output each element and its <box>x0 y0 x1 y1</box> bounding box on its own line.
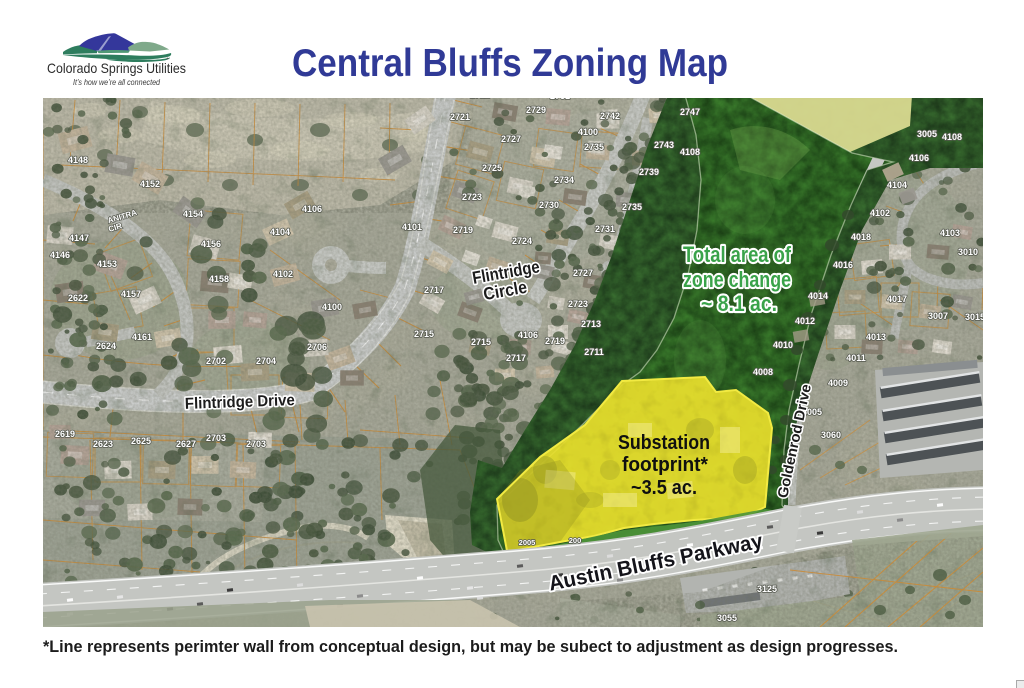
svg-text:4157: 4157 <box>121 289 141 299</box>
svg-text:2723: 2723 <box>568 299 588 309</box>
svg-text:2729: 2729 <box>526 105 546 115</box>
svg-text:4014: 4014 <box>808 291 828 301</box>
svg-text:3060: 3060 <box>821 430 841 440</box>
svg-text:2625: 2625 <box>131 436 151 446</box>
svg-text:4009: 4009 <box>828 378 848 388</box>
svg-text:4103: 4103 <box>940 228 960 238</box>
svg-text:4102: 4102 <box>870 208 890 218</box>
svg-text:3015: 3015 <box>965 312 985 322</box>
svg-text:It’s how we’re all connected: It’s how we’re all connected <box>73 78 160 87</box>
svg-text:4101: 4101 <box>402 222 422 232</box>
svg-text:4104: 4104 <box>887 180 907 190</box>
svg-text:3007: 3007 <box>928 311 948 321</box>
svg-text:4106: 4106 <box>302 204 322 214</box>
svg-text:Substation: Substation <box>618 432 710 454</box>
svg-text:2703: 2703 <box>246 439 266 449</box>
svg-text:2731: 2731 <box>595 224 615 234</box>
svg-text:4011: 4011 <box>846 353 866 363</box>
svg-text:2717: 2717 <box>506 353 526 363</box>
svg-text:2730: 2730 <box>539 200 559 210</box>
svg-text:4148: 4148 <box>68 155 88 165</box>
svg-text:2747: 2747 <box>680 107 700 117</box>
svg-text:zone change: zone change <box>683 267 791 292</box>
svg-text:2706: 2706 <box>307 342 327 352</box>
svg-text:2731: 2731 <box>550 91 570 101</box>
svg-text:~ 8.1 ac.: ~ 8.1 ac. <box>701 291 777 316</box>
svg-text:2722: 2722 <box>470 90 490 100</box>
svg-text:200: 200 <box>569 536 582 545</box>
svg-text:4106: 4106 <box>909 153 929 163</box>
svg-text:2723: 2723 <box>462 192 482 202</box>
svg-text:2715: 2715 <box>471 337 491 347</box>
svg-text:2703: 2703 <box>206 433 226 443</box>
svg-text:*Line represents perimter wall: *Line represents perimter wall from conc… <box>43 638 898 656</box>
svg-text:Colorado Springs Utilities: Colorado Springs Utilities <box>47 60 186 76</box>
svg-text:4146: 4146 <box>50 250 70 260</box>
svg-text:2735: 2735 <box>622 202 642 212</box>
svg-text:4012: 4012 <box>795 316 815 326</box>
svg-text:2739: 2739 <box>639 167 659 177</box>
svg-text:4106: 4106 <box>518 330 538 340</box>
svg-text:4018: 4018 <box>851 232 871 242</box>
svg-text:2717: 2717 <box>424 285 444 295</box>
svg-text:2624: 2624 <box>96 341 116 351</box>
svg-text:4017: 4017 <box>887 294 907 304</box>
svg-text:3125: 3125 <box>757 584 777 594</box>
svg-text:2719: 2719 <box>453 225 473 235</box>
svg-text:4161: 4161 <box>132 332 152 342</box>
svg-text:4100: 4100 <box>322 302 342 312</box>
svg-text:2623: 2623 <box>93 439 113 449</box>
svg-text:4102: 4102 <box>273 269 293 279</box>
svg-text:2715: 2715 <box>414 329 434 339</box>
svg-text:4016: 4016 <box>833 260 853 270</box>
svg-text:4013: 4013 <box>866 332 886 342</box>
svg-text:2704: 2704 <box>256 356 276 366</box>
svg-text:4108: 4108 <box>680 147 700 157</box>
svg-text:2619: 2619 <box>55 429 75 439</box>
svg-text:2702: 2702 <box>206 356 226 366</box>
svg-text:4158: 4158 <box>209 274 229 284</box>
svg-text:4154: 4154 <box>183 209 203 219</box>
svg-text:2719: 2719 <box>545 336 565 346</box>
svg-text:2005: 2005 <box>519 538 536 547</box>
svg-text:3055: 3055 <box>717 613 737 623</box>
svg-text:2622: 2622 <box>68 293 88 303</box>
svg-text:2721: 2721 <box>450 112 470 122</box>
svg-text:2627: 2627 <box>176 439 196 449</box>
svg-text:2735: 2735 <box>584 142 604 152</box>
svg-text:2743: 2743 <box>654 140 674 150</box>
svg-text:2713: 2713 <box>581 319 601 329</box>
svg-text:Central Bluffs Zoning Map: Central Bluffs Zoning Map <box>292 42 728 85</box>
svg-text:2725: 2725 <box>482 163 502 173</box>
svg-text:4010: 4010 <box>773 340 793 350</box>
svg-text:3005: 3005 <box>917 129 937 139</box>
svg-text:2727: 2727 <box>573 268 593 278</box>
svg-text:Total area of: Total area of <box>683 242 792 267</box>
svg-text:2734: 2734 <box>554 175 574 185</box>
svg-text:3010: 3010 <box>958 247 978 257</box>
svg-text:2711: 2711 <box>584 347 604 357</box>
svg-text:2724: 2724 <box>512 236 532 246</box>
svg-text:4108: 4108 <box>942 132 962 142</box>
svg-text:~3.5 ac.: ~3.5 ac. <box>631 477 697 499</box>
svg-text:4152: 4152 <box>140 179 160 189</box>
svg-text:4147: 4147 <box>69 233 89 243</box>
svg-text:2742: 2742 <box>600 111 620 121</box>
svg-text:4153: 4153 <box>97 259 117 269</box>
svg-text:4100: 4100 <box>578 127 598 137</box>
svg-text:4104: 4104 <box>270 227 290 237</box>
svg-text:2727: 2727 <box>501 134 521 144</box>
svg-text:4156: 4156 <box>201 239 221 249</box>
svg-text:4008: 4008 <box>753 367 773 377</box>
svg-text:footprint*: footprint* <box>622 454 708 476</box>
